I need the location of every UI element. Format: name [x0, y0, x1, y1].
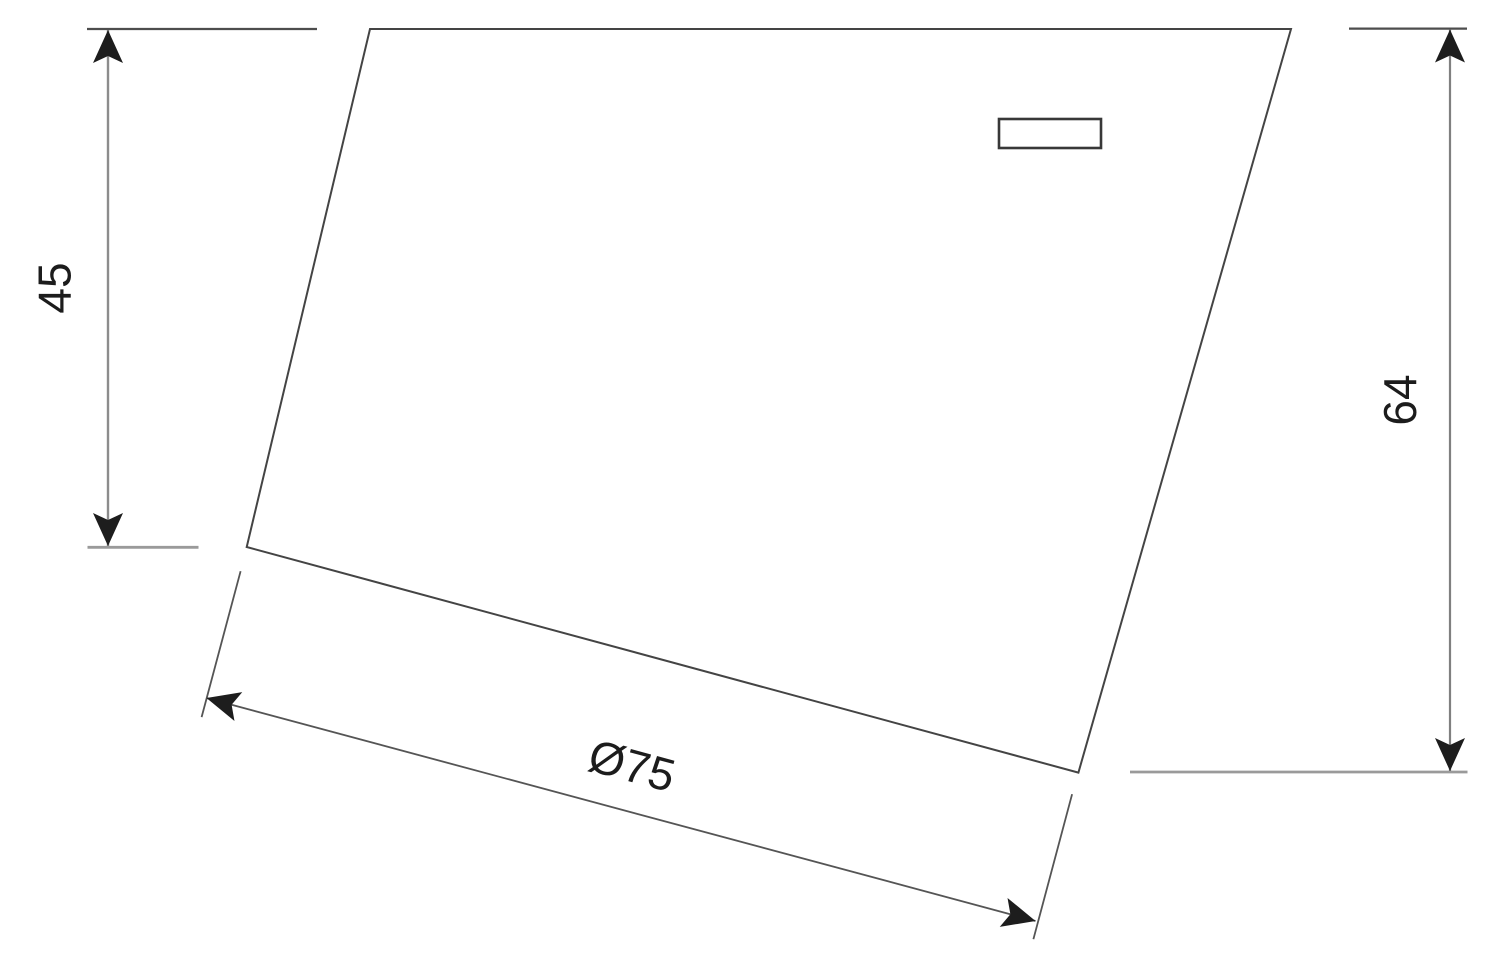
svg-text:45: 45	[28, 262, 80, 313]
svg-text:64: 64	[1374, 374, 1426, 425]
